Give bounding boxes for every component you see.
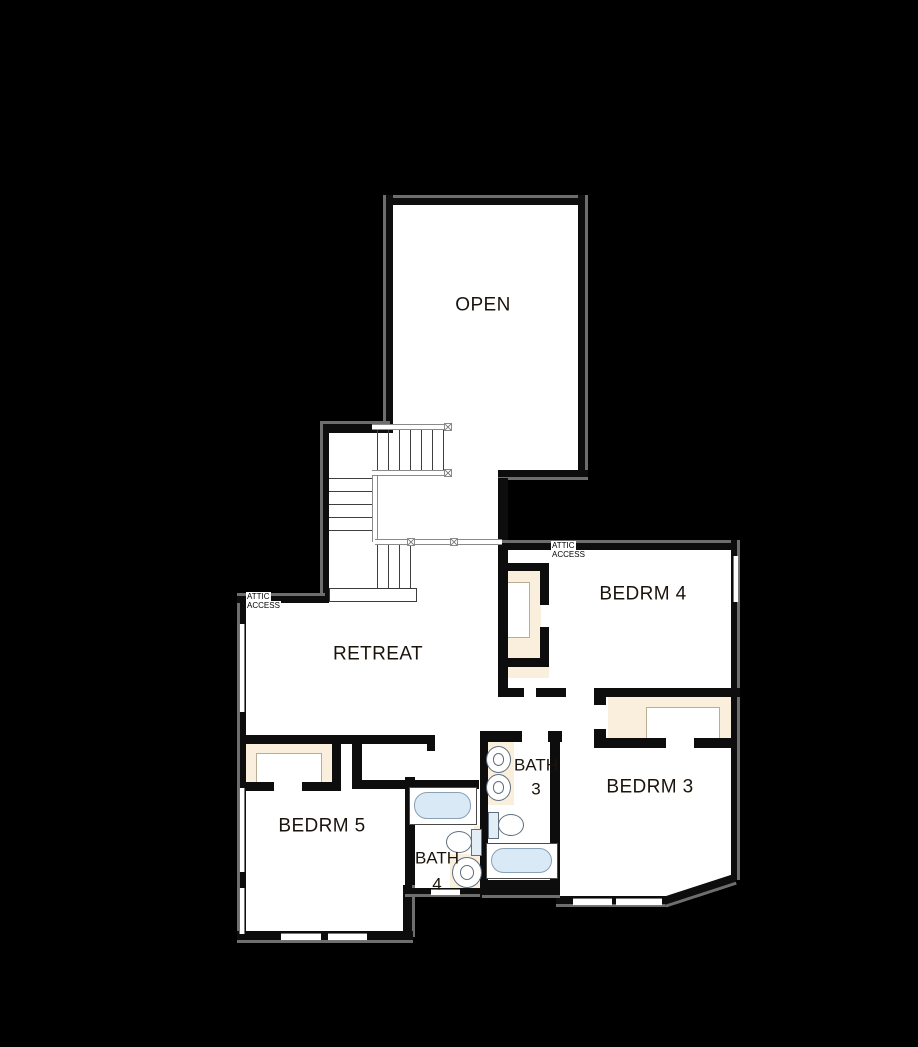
sink [486, 746, 511, 773]
wall [594, 738, 666, 748]
wall [694, 738, 736, 748]
attic-access-line1: ATTIC [246, 592, 271, 601]
wall [594, 688, 740, 697]
wall [548, 731, 562, 742]
railing-post-marker [444, 423, 452, 431]
wall [498, 688, 524, 697]
wall [578, 195, 588, 480]
wall [302, 782, 334, 791]
window [281, 933, 321, 941]
bathtub-basin [414, 792, 471, 819]
toilet [498, 814, 524, 836]
attic-access-line1: ATTIC [551, 541, 576, 550]
closet-interior [256, 753, 322, 783]
room-label-open: OPEN [455, 296, 510, 315]
bathtub-basin [491, 848, 552, 873]
stair-railing [372, 476, 378, 542]
room-label-bedrm5: BEDRM 5 [278, 817, 365, 836]
floor-plan: OPEN RETREAT BEDRM 4 BEDRM 3 BEDRM 5 BAT… [0, 0, 918, 1047]
railing-post-marker [444, 469, 452, 477]
room-label-retreat: RETREAT [333, 645, 423, 664]
room-label-bath3: BATH [514, 757, 558, 774]
window [239, 668, 245, 712]
wall [731, 698, 740, 880]
room-label-bedrm4: BEDRM 4 [599, 585, 686, 604]
room-label-bath4-number: 4 [432, 876, 441, 893]
window [328, 933, 367, 941]
room-label-bath4: BATH [415, 850, 459, 867]
window [239, 888, 245, 934]
stair-railing [372, 424, 450, 430]
window [733, 556, 739, 602]
wall [242, 782, 274, 791]
wall [536, 688, 566, 697]
wall [427, 735, 435, 751]
sink [486, 774, 511, 801]
attic-access-line2: ACCESS [551, 550, 586, 559]
wall [332, 743, 341, 791]
stair-flight [377, 430, 447, 470]
toilet-tank [471, 829, 482, 856]
loft-railing [375, 539, 502, 545]
window [239, 788, 245, 872]
wall [504, 658, 549, 667]
window [239, 624, 245, 668]
room-label-bedrm3: BEDRM 3 [606, 778, 693, 797]
wall [498, 540, 740, 550]
wall [482, 880, 560, 898]
wall [498, 470, 588, 480]
window [616, 898, 662, 906]
stair-railing [372, 470, 450, 476]
room-retreat-floor [242, 597, 506, 739]
stair-flight [377, 545, 414, 588]
railing-post-marker [407, 538, 415, 546]
closet-shelving [504, 667, 549, 678]
stair-landing [329, 588, 417, 602]
wall [594, 688, 606, 705]
window [573, 898, 612, 906]
wall [540, 627, 549, 662]
wall [237, 931, 413, 943]
closet-interior [646, 707, 720, 739]
wall [320, 433, 329, 603]
wall [540, 563, 549, 605]
room-label-bath3-number: 3 [531, 781, 540, 798]
wall [383, 195, 393, 433]
stair-flight [329, 478, 372, 540]
attic-access-line2: ACCESS [246, 601, 281, 610]
railing-post-marker [450, 538, 458, 546]
wall [383, 195, 588, 205]
